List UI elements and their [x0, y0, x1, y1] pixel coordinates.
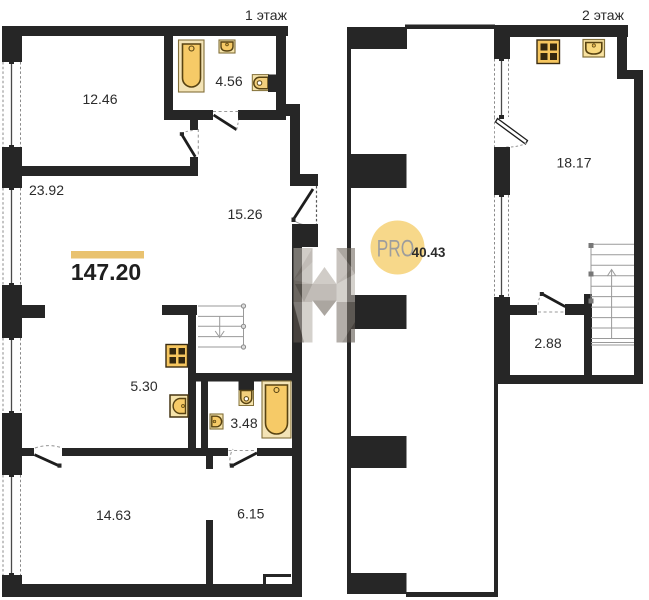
svg-text:6.15: 6.15	[237, 506, 264, 522]
svg-text:23.92: 23.92	[29, 182, 64, 198]
svg-text:12.46: 12.46	[82, 91, 117, 107]
svg-text:4.56: 4.56	[215, 73, 242, 89]
svg-text:3.48: 3.48	[230, 415, 257, 431]
svg-text:18.17: 18.17	[556, 155, 591, 171]
svg-text:40.43: 40.43	[412, 245, 446, 260]
svg-text:147.20: 147.20	[71, 259, 141, 285]
svg-text:2.88: 2.88	[534, 335, 561, 351]
svg-text:5.30: 5.30	[130, 378, 157, 394]
svg-text:15.26: 15.26	[227, 206, 262, 222]
svg-text:14.63: 14.63	[96, 507, 131, 523]
svg-text:1 этаж: 1 этаж	[245, 7, 288, 23]
svg-text:PRO: PRO	[377, 236, 415, 263]
svg-text:2 этаж: 2 этаж	[582, 7, 625, 23]
